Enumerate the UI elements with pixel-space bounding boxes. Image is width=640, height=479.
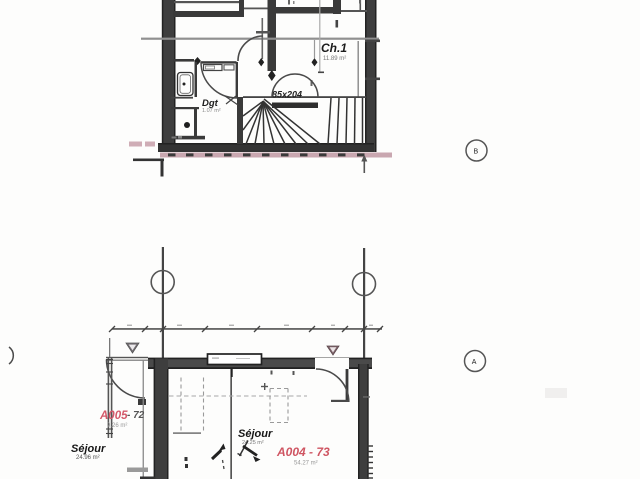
svg-text:B: B [474, 149, 479, 156]
svg-text:Ch.1: Ch.1 [321, 41, 347, 55]
svg-text:A: A [472, 359, 477, 366]
svg-text:9.26 m²: 9.26 m² [107, 423, 127, 429]
svg-text:11.89 m²: 11.89 m² [323, 56, 346, 62]
svg-text:A004 - 73: A004 - 73 [276, 445, 330, 459]
svg-text:85x204: 85x204 [272, 90, 302, 100]
svg-text:Séjour: Séjour [238, 428, 273, 440]
svg-text:A005: A005 [99, 410, 128, 422]
svg-text:54.27 m²: 54.27 m² [294, 461, 318, 467]
svg-text:- 72: - 72 [127, 410, 145, 421]
svg-text:24.96 m²: 24.96 m² [76, 455, 100, 461]
svg-text:Séjour: Séjour [71, 443, 106, 455]
svg-text:1.07 m²: 1.07 m² [202, 108, 221, 114]
